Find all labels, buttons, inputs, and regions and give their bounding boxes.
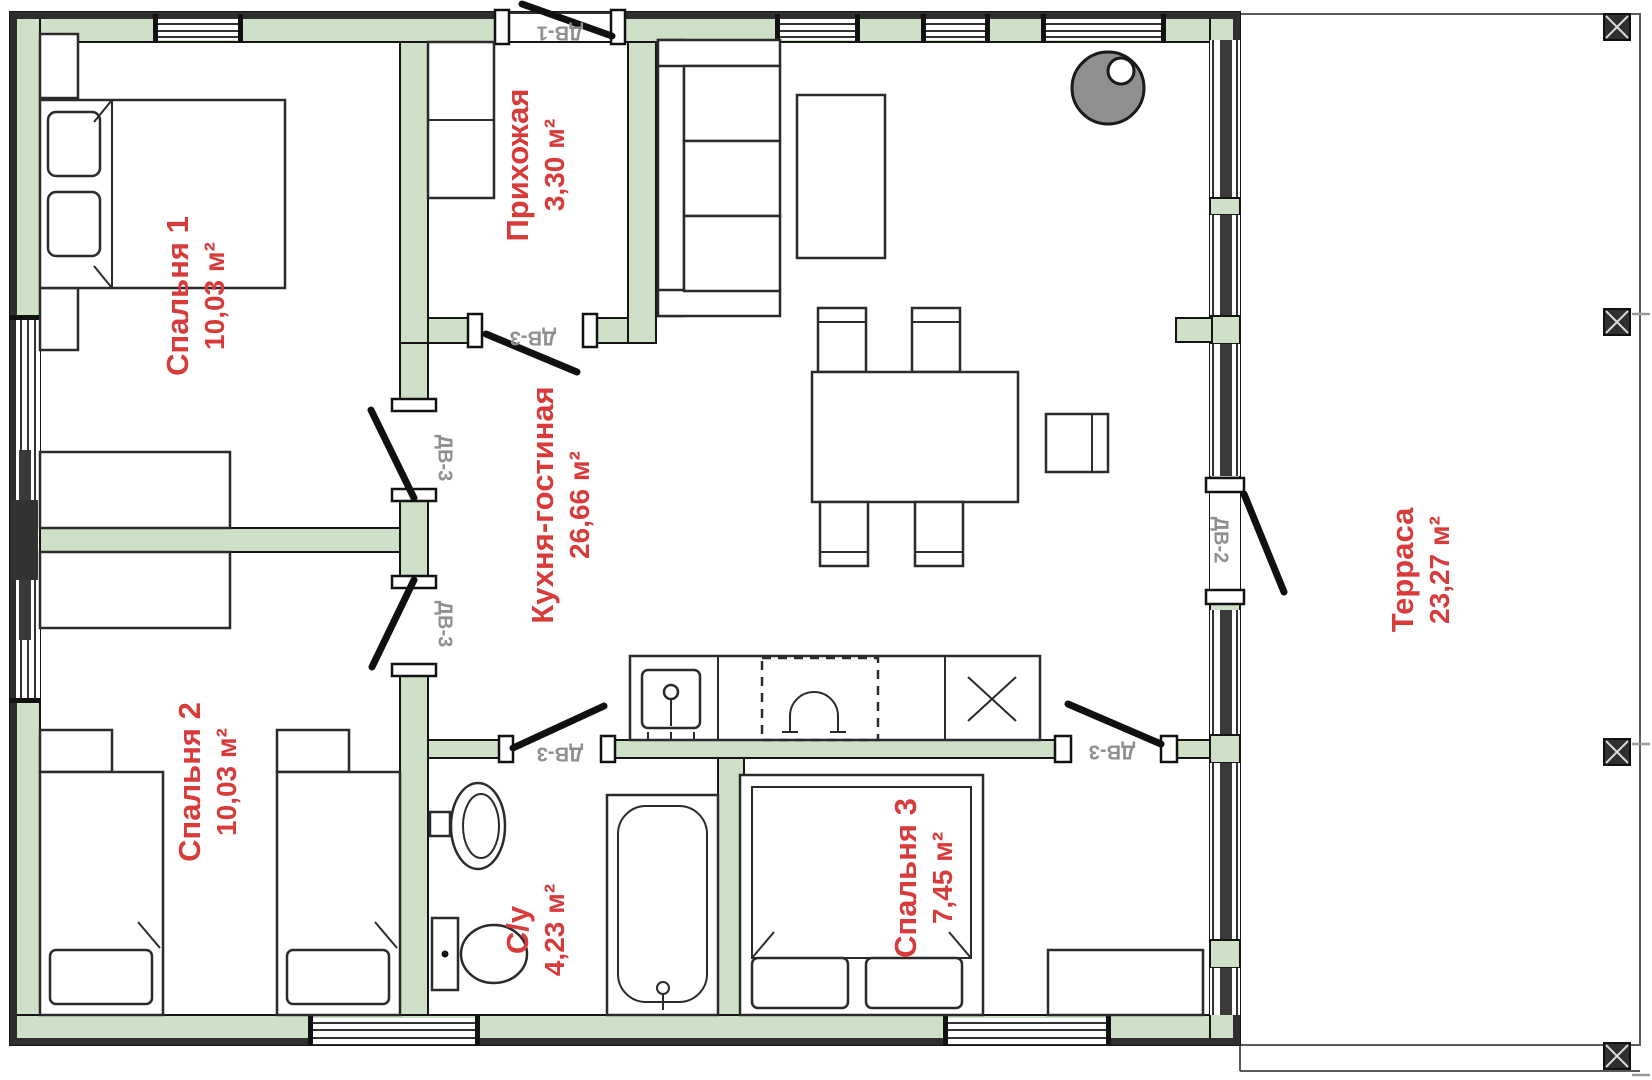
svg-text:Терраса: Терраса (1385, 507, 1420, 632)
nightstand (277, 730, 349, 772)
bedroom2-door-leaf (372, 580, 414, 667)
dining-table (812, 372, 1018, 502)
hallway-closet (428, 42, 494, 198)
bedrooms-kitchen-wall (400, 343, 428, 407)
wall-stub (1176, 318, 1212, 342)
terrace-post (1604, 14, 1630, 40)
single-bed (277, 772, 400, 1015)
window-mullion (1210, 198, 1240, 215)
room-label-hallway: Прихожая 3,30 м² (500, 89, 570, 242)
door-label-terrace: ДВ-2 (1210, 517, 1232, 563)
pillow (48, 112, 100, 176)
svg-text:26,66 м²: 26,66 м² (564, 451, 595, 559)
window (308, 1015, 480, 1045)
wall-pier (1210, 316, 1240, 344)
bedrooms-kitchen-wall (400, 497, 428, 580)
window (943, 1015, 1111, 1045)
pillow (752, 958, 848, 1008)
svg-text:Спальня 1: Спальня 1 (160, 216, 195, 376)
chair (1046, 414, 1108, 472)
door-label-entry: ДВ-1 (537, 22, 583, 44)
window (1210, 40, 1240, 198)
floor-plan-drawing: Спальня 1 10,03 м² Прихожая 3,30 м² Кухн… (0, 0, 1652, 1080)
door-label-bathroom: ДВ-3 (537, 743, 583, 765)
chair (818, 308, 866, 372)
svg-text:4,23 м²: 4,23 м² (539, 884, 570, 976)
bathroom-north-wall (428, 740, 507, 758)
sofa (658, 40, 780, 316)
stove-icon (1072, 52, 1144, 124)
terrace-post (1604, 739, 1650, 765)
bedroom-divider-wall (40, 528, 428, 552)
single-bed (40, 772, 163, 1015)
nightstand (40, 288, 78, 350)
door-label-hallway-kitchen: ДВ-3 (510, 327, 556, 349)
door-label-bedroom3: ДВ-3 (1089, 741, 1135, 763)
bathroom-left-wall (400, 668, 428, 1015)
terrace-post (1604, 309, 1650, 335)
kitchen-counter (630, 656, 1040, 740)
pillow (287, 950, 389, 1004)
svg-text:10,03 м²: 10,03 м² (211, 728, 242, 836)
bedroom3-furniture (740, 775, 1203, 1015)
window (1210, 610, 1240, 735)
window (1210, 968, 1240, 1015)
door-label-bedroom2: ДВ-3 (434, 601, 456, 647)
floor-plan-page: Спальня 1 10,03 м² Прихожая 3,30 м² Кухн… (0, 0, 1652, 1080)
svg-text:Спальня 3: Спальня 3 (888, 798, 923, 958)
door-label-bedroom1: ДВ-3 (434, 435, 456, 481)
svg-text:10,03 м²: 10,03 м² (199, 242, 230, 350)
dining-set (812, 308, 1108, 566)
wall-pier (1210, 735, 1240, 763)
dresser (1048, 950, 1203, 1015)
window (1210, 763, 1240, 940)
left-wall-pier (12, 500, 38, 580)
chair (820, 502, 868, 566)
window (1210, 344, 1240, 476)
room-label-bedroom2: Спальня 2 10,03 м² (172, 702, 242, 862)
window (1210, 215, 1240, 316)
chair (915, 502, 963, 566)
washbasin (430, 783, 505, 869)
room-label-kitchen-living: Кухня-гостиная 26,66 м² (525, 386, 595, 623)
svg-text:Спальня 2: Спальня 2 (172, 702, 207, 862)
svg-text:23,27 м²: 23,27 м² (1424, 516, 1455, 624)
svg-text:Кухня-гостиная: Кухня-гостиная (525, 386, 560, 623)
bathroom-bedroom3-north-wall (607, 740, 1057, 758)
svg-text:С/у: С/у (500, 905, 535, 954)
bathroom-door-leaf (513, 706, 604, 748)
pillow (50, 950, 152, 1004)
coffee-table (797, 95, 885, 258)
hallway-left-wall (400, 42, 428, 343)
window-mullion (1210, 940, 1240, 968)
svg-text:Прихожая: Прихожая (500, 89, 535, 242)
wardrobe (40, 452, 230, 528)
svg-text:3,30 м²: 3,30 м² (539, 119, 570, 211)
bathroom-fixtures (430, 783, 718, 1015)
svg-text:7,45 м²: 7,45 м² (927, 832, 958, 924)
living-room-furniture (630, 40, 1144, 740)
bedroom3-door-leaf (1068, 704, 1161, 744)
pillow (48, 192, 100, 256)
pillow (866, 958, 962, 1008)
hallway-right-wall (628, 42, 656, 343)
nightstand (40, 34, 78, 98)
chair (912, 308, 960, 372)
bedroom1-door-leaf (371, 410, 414, 498)
nightstand (40, 730, 112, 772)
bedroom3-north-wall (1177, 740, 1210, 758)
bathtub (607, 795, 718, 1015)
wardrobe (40, 552, 230, 628)
